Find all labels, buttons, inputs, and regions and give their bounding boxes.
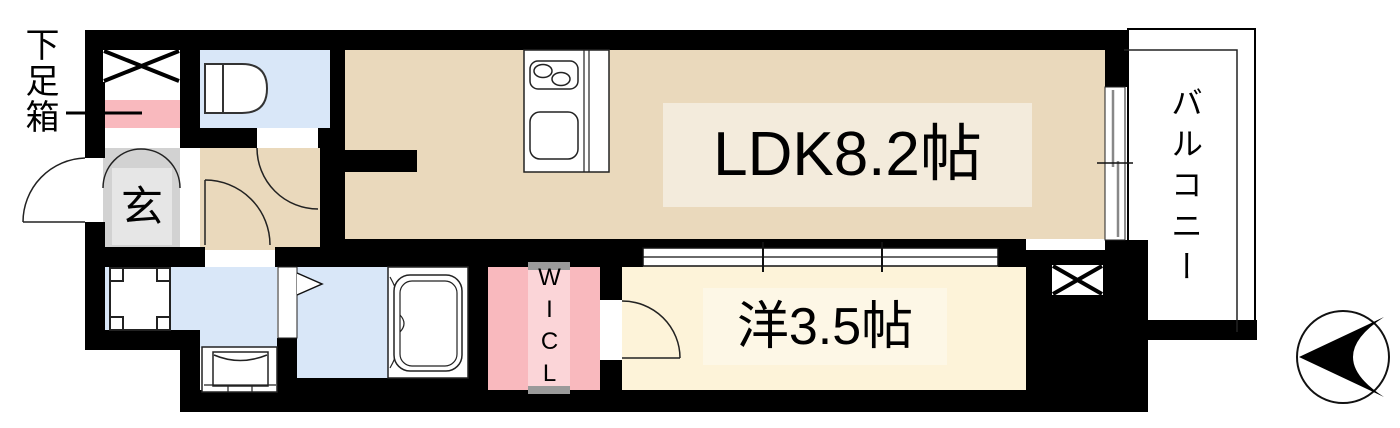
wall-right-top — [1105, 30, 1128, 87]
floor-plan: 下足箱 玄 LDK8.2帖 洋3.5帖 WICL バルコニー — [0, 0, 1400, 428]
western-room-label: 洋3.5帖 — [737, 301, 913, 353]
entry-door-swing-icon — [23, 158, 85, 222]
wall-ldk-south-right — [998, 239, 1026, 267]
shaft-x-icon — [103, 50, 180, 82]
wall-ldk-south-left — [345, 239, 643, 267]
bathroom-floor — [297, 267, 388, 378]
wall-wicl-right-bottom — [600, 360, 622, 392]
washroom-floor — [103, 267, 277, 330]
wall-balcony-bottom — [1148, 320, 1257, 340]
ldk-label: LDK8.2帖 — [713, 124, 982, 186]
wall-under-bath — [297, 378, 488, 392]
toilet-room-floor — [200, 50, 330, 128]
wall-hall-wash-right — [275, 247, 345, 267]
wall-ldk-south-thin — [643, 239, 998, 248]
wall-left-upper — [85, 50, 105, 158]
wall-toilet-bottom-left — [200, 128, 257, 148]
wall-genkan-toilet — [180, 50, 200, 148]
wall-wicl-right-top — [600, 267, 622, 300]
genkan-label: 玄 — [121, 186, 163, 228]
ldk-label-bg: LDK8.2帖 — [663, 103, 1032, 207]
shoe-box-label: 下足箱 — [16, 22, 62, 140]
north-arrow-icon — [1297, 311, 1389, 403]
wall-right-below-window — [1105, 240, 1148, 267]
shoe-cabinet — [103, 100, 180, 128]
wall-toilet-right — [330, 50, 345, 128]
wall-bottom-right-mass — [1026, 250, 1148, 412]
western-room-label-bg: 洋3.5帖 — [703, 288, 947, 365]
balcony-label: バルコニー — [1160, 68, 1210, 308]
wall-toilet-bottom-right — [318, 128, 345, 148]
washroom-floor-lower — [200, 330, 277, 348]
washbasin-icon — [202, 347, 277, 392]
wall-top — [85, 30, 1125, 50]
wall-hall-wash-left — [85, 247, 205, 267]
wicl-door-strip: WICL — [528, 262, 570, 394]
wall-bath-wicl — [468, 267, 488, 390]
hallway-floor — [200, 148, 320, 250]
bathtub-icon — [388, 267, 468, 378]
wall-ldk-stub — [345, 150, 417, 172]
wall-wash-bath-lower — [277, 338, 297, 392]
wicl-label: WICL — [528, 270, 570, 386]
genkan-inner: 玄 — [112, 168, 172, 245]
wall-bottom — [180, 390, 1148, 412]
